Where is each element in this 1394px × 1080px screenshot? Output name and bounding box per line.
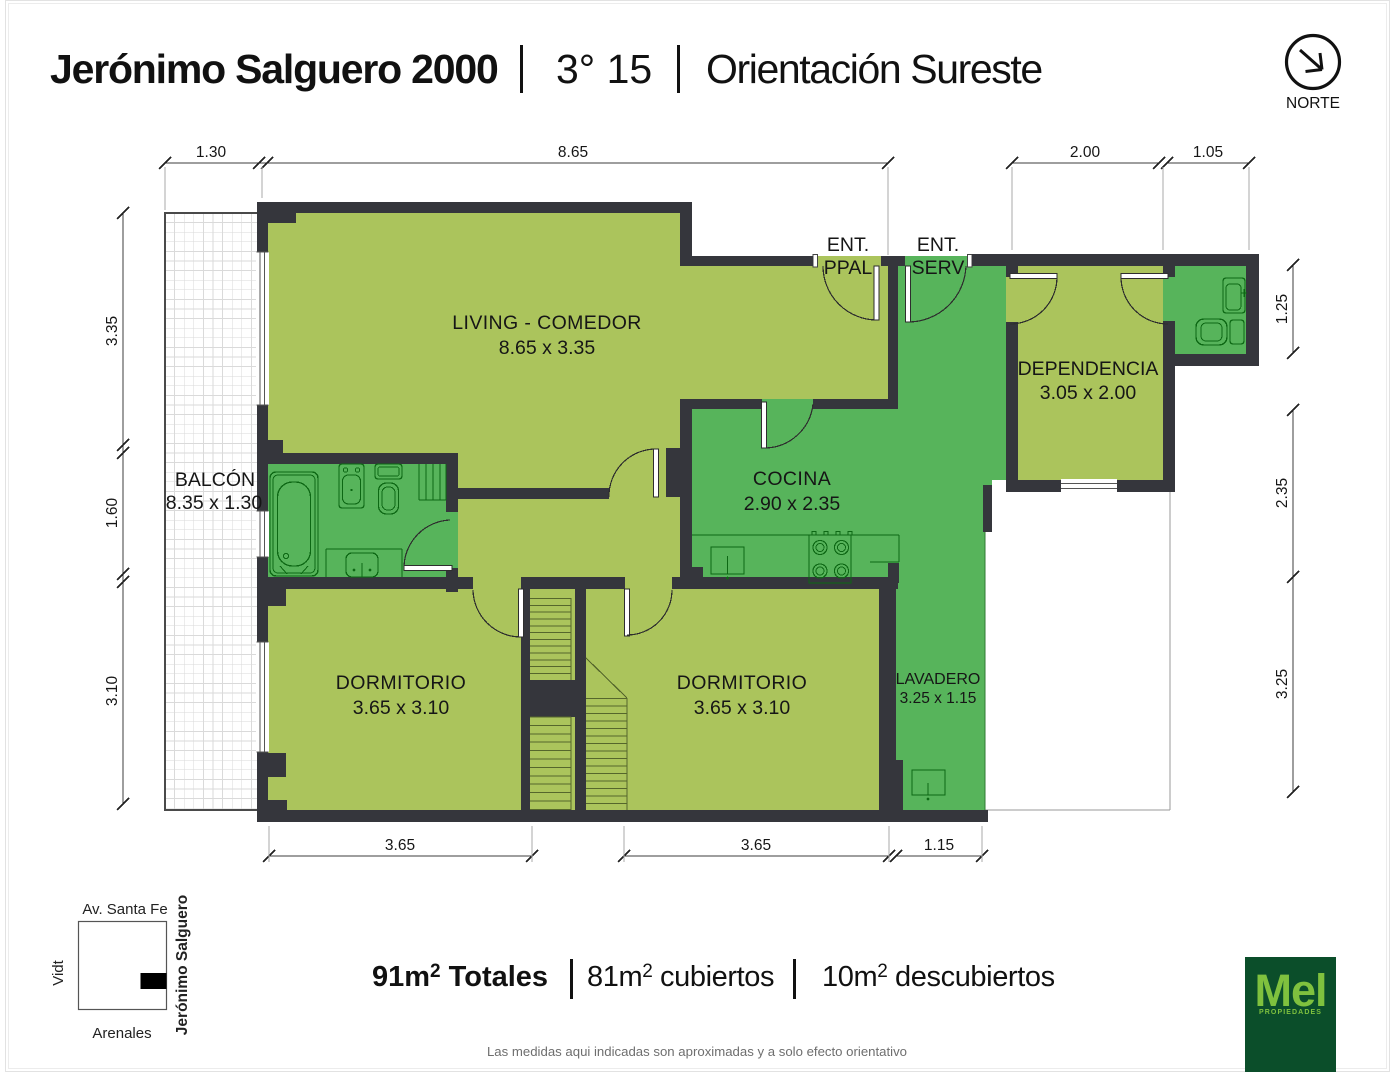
svg-text:Vidt: Vidt (50, 959, 67, 985)
svg-text:3.25 x 1.15: 3.25 x 1.15 (900, 690, 977, 707)
svg-text:LIVING - COMEDOR: LIVING - COMEDOR (452, 312, 642, 334)
svg-text:3.65 x 3.10: 3.65 x 3.10 (694, 697, 791, 719)
svg-text:DORMITORIO: DORMITORIO (677, 672, 807, 694)
svg-text:SERV: SERV (912, 257, 965, 279)
svg-text:PPAL: PPAL (824, 257, 873, 279)
svg-text:ENT.: ENT. (917, 234, 959, 256)
svg-text:LAVADERO: LAVADERO (896, 671, 981, 688)
svg-text:1.25: 1.25 (1274, 294, 1291, 324)
svg-text:BALCÓN: BALCÓN (175, 468, 255, 491)
svg-text:3.65 x 3.10: 3.65 x 3.10 (353, 697, 450, 719)
svg-text:Jerónimo Salguero: Jerónimo Salguero (174, 895, 191, 1035)
svg-text:1.30: 1.30 (196, 144, 227, 161)
svg-text:8.65: 8.65 (558, 144, 588, 161)
svg-text:2.00: 2.00 (1070, 144, 1101, 161)
svg-text:3.65: 3.65 (385, 837, 415, 854)
svg-text:DORMITORIO: DORMITORIO (336, 672, 466, 694)
svg-text:3.25: 3.25 (1274, 669, 1291, 699)
svg-text:COCINA: COCINA (753, 468, 831, 490)
svg-text:2.90 x 2.35: 2.90 x 2.35 (744, 493, 841, 515)
svg-text:1.15: 1.15 (924, 837, 954, 854)
svg-text:DEPENDENCIA: DEPENDENCIA (1018, 358, 1159, 380)
svg-text:3.05 x 2.00: 3.05 x 2.00 (1040, 382, 1137, 404)
svg-text:3.10: 3.10 (104, 676, 121, 707)
svg-text:3.35: 3.35 (104, 316, 121, 346)
svg-text:2.35: 2.35 (1274, 478, 1291, 508)
svg-text:1.05: 1.05 (1193, 144, 1223, 161)
svg-text:ENT.: ENT. (827, 234, 869, 256)
svg-text:1.60: 1.60 (104, 498, 121, 529)
svg-text:Av. Santa Fe: Av. Santa Fe (82, 901, 167, 918)
svg-text:3.65: 3.65 (741, 837, 771, 854)
svg-text:8.65 x 3.35: 8.65 x 3.35 (499, 337, 596, 359)
svg-text:Arenales: Arenales (92, 1025, 151, 1042)
svg-text:8.35 x 1.30: 8.35 x 1.30 (166, 492, 263, 514)
